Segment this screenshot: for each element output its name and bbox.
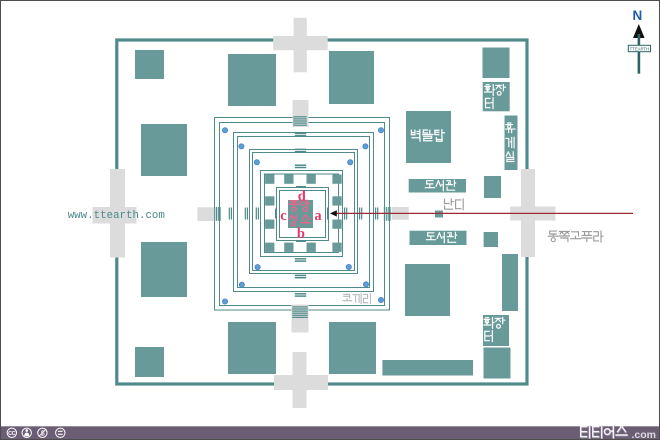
svg-text:c: c [280, 208, 287, 224]
svg-text:.com: .com [632, 429, 657, 440]
svg-text:N: N [633, 8, 643, 23]
svg-text:a: a [314, 208, 322, 224]
svg-text:TTEARTH: TTEARTH [630, 46, 650, 51]
svg-text:d: d [298, 188, 306, 204]
svg-text:b: b [297, 226, 305, 242]
svg-text:CC: CC [8, 431, 16, 437]
svg-text:www.ttearth.com: www.ttearth.com [68, 210, 165, 222]
